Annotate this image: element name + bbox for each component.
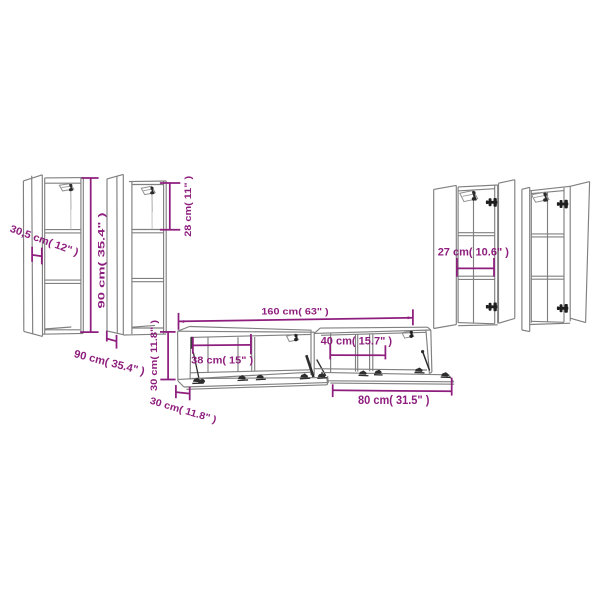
- svg-text:28 cm( 11" ): 28 cm( 11" ): [183, 176, 193, 237]
- svg-text:80 cm( 31.5" ): 80 cm( 31.5" ): [358, 394, 430, 407]
- svg-text:27 cm( 10.6" ): 27 cm( 10.6" ): [438, 247, 509, 259]
- svg-text:160 cm( 63" ): 160 cm( 63" ): [261, 307, 328, 317]
- svg-text:90 cm( 35.4" ): 90 cm( 35.4" ): [97, 212, 107, 308]
- svg-text:40 cm( 15.7" ): 40 cm( 15.7" ): [321, 335, 393, 347]
- svg-text:30 cm( 11.8" ): 30 cm( 11.8" ): [149, 320, 159, 391]
- svg-text:38 cm( 15" ): 38 cm( 15" ): [191, 356, 253, 367]
